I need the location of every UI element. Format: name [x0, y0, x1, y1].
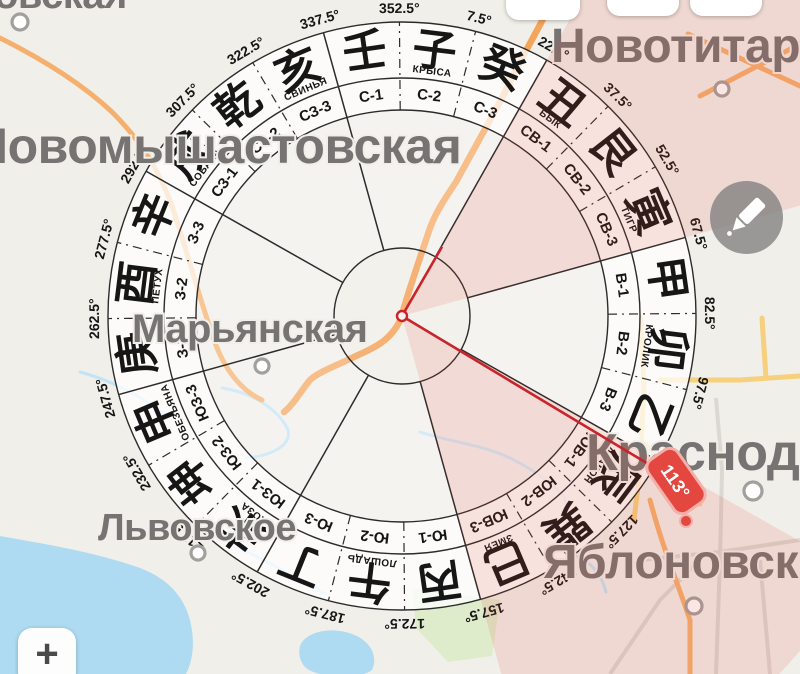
pencil-icon: [710, 181, 783, 254]
map-label: Львовское: [98, 507, 296, 549]
town-dot: [12, 14, 28, 30]
mountain-char: 丙: [414, 553, 464, 608]
top-button-2[interactable]: [607, 0, 679, 16]
degree-label: 262.5°: [86, 298, 102, 339]
town-dot: [255, 359, 269, 373]
direction-label: В-1: [612, 272, 632, 298]
mountain-char: 甲: [639, 254, 694, 304]
town-dot: [744, 482, 762, 500]
direction-label: З-2: [172, 277, 192, 302]
direction-label: С-2: [416, 86, 442, 106]
map-label: Марьянская: [132, 307, 367, 351]
top-button-1[interactable]: [506, 0, 580, 20]
map-label: Новомышастовская: [0, 118, 461, 174]
town-dot: [191, 546, 205, 560]
degree-label: 82.5°: [702, 297, 718, 330]
map-compass-scene[interactable]: С-1壬337.5°С-2子КРЫСА352.5°С-3癸7.5°СВ-1丑БЫ…: [0, 0, 800, 674]
direction-label: С-1: [358, 86, 384, 106]
degree-label: 352.5°: [379, 0, 420, 16]
direction-label: В-2: [612, 330, 632, 356]
top-button-3[interactable]: [690, 0, 762, 16]
direction-label: Ю-2: [360, 526, 391, 546]
edit-button[interactable]: [710, 181, 783, 254]
map-canvas[interactable]: С-1壬337.5°С-2子КРЫСА352.5°С-3癸7.5°СВ-1丑БЫ…: [0, 0, 800, 674]
degree-label: 172.5°: [384, 616, 425, 632]
mountain-char: 壬: [340, 24, 390, 79]
zoom-in-button[interactable]: +: [18, 628, 76, 674]
compass-center-marker: [397, 311, 407, 321]
target-point-marker: [680, 515, 692, 527]
